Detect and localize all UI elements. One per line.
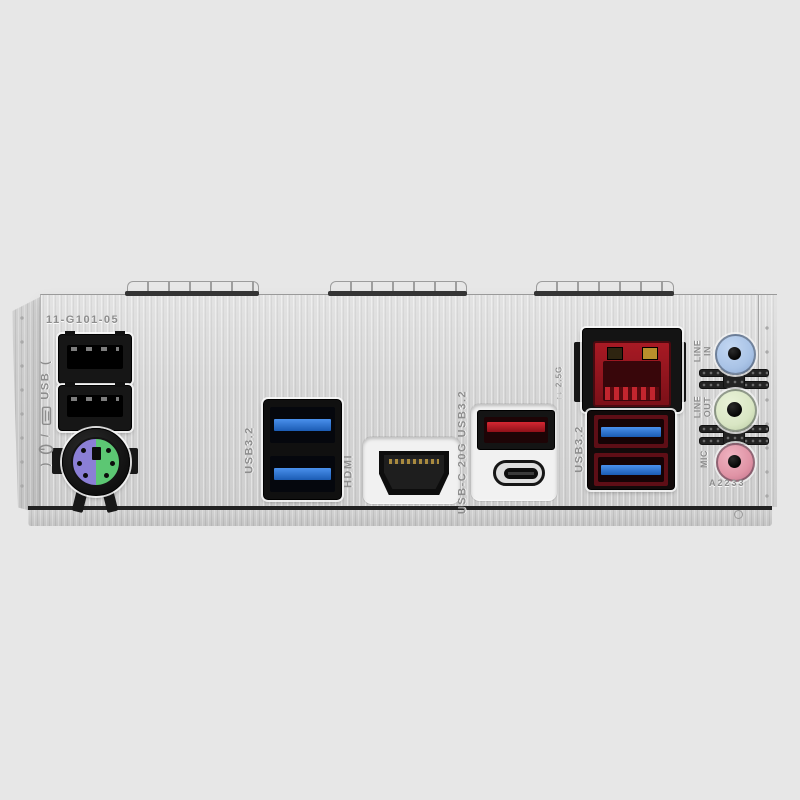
- usb2-port-2: [58, 385, 132, 431]
- usb32-gen1-stack: [263, 399, 342, 500]
- ps2-pin-hole: [83, 473, 88, 478]
- usb32-gen2-stack: [587, 410, 675, 490]
- usb-contacts: [71, 347, 119, 351]
- usb3-tongue: [274, 468, 331, 480]
- bottom-dimple: [734, 510, 743, 519]
- usb-text: USB: [40, 372, 53, 400]
- usb32-gen2-port-2: [594, 453, 668, 486]
- emi-dimples-left: [17, 306, 27, 506]
- usb-slot: [598, 457, 664, 482]
- usb2-slot: [67, 345, 123, 369]
- usb32-mid-label: USB3.2: [244, 426, 257, 474]
- usb-c-port: [493, 460, 545, 486]
- usb-shell-ear: [115, 382, 125, 387]
- ps2-pin-hole: [104, 473, 109, 478]
- keyboard-icon: [41, 407, 51, 426]
- usb32-gen1-port-1: [270, 407, 335, 443]
- usb32-gen2-red-port: [477, 410, 555, 450]
- ps2-pin-hole: [110, 461, 115, 466]
- paren: ): [40, 461, 53, 466]
- part-number-stamp: 11-G101-05: [46, 314, 119, 327]
- line-in-label: LINE IN: [693, 340, 714, 363]
- hdmi-label: HDMI: [343, 454, 356, 488]
- hdmi-recess: [363, 437, 460, 504]
- ps2-pin-hole: [106, 448, 111, 453]
- mic-label: MIC: [699, 450, 709, 468]
- line-out-label: LINE OUT: [693, 396, 714, 419]
- ps2-pin-hole: [77, 461, 82, 466]
- usb-c-tongue: [508, 472, 534, 475]
- usb-shell-ear: [65, 382, 75, 387]
- emi-dimples-right: [762, 316, 772, 501]
- ps2-pin-hole: [81, 448, 86, 453]
- usbc-label: USB-C 20G USB3.2: [457, 390, 470, 514]
- usb-slot: [598, 419, 664, 444]
- usb-shell-ear: [65, 331, 75, 336]
- usb32-gen2-port-1: [594, 415, 668, 448]
- mouse-icon: [39, 444, 54, 454]
- tab-shadow-right: [534, 291, 674, 296]
- slash: /: [40, 433, 53, 438]
- usb3-tongue: [601, 465, 661, 475]
- product-photo: 11-G101-05 ) / USB: [0, 0, 800, 800]
- ps2-key-slot: [92, 447, 101, 460]
- usbc-recess: [471, 404, 557, 501]
- usb3-tongue: [601, 427, 661, 437]
- ps2-face: [71, 437, 121, 487]
- ps2-port: [62, 428, 130, 496]
- audio-jack-line-out: [714, 389, 757, 432]
- jack-hole: [727, 402, 742, 417]
- usb-red-tongue: [487, 422, 545, 432]
- usb32-right-label: USB3.2: [574, 425, 587, 473]
- usb-contacts: [71, 397, 119, 401]
- lan-led-left: [607, 347, 623, 360]
- rj45-pins: [605, 387, 659, 400]
- jack-hole: [728, 455, 741, 468]
- usb3-tongue: [274, 419, 331, 431]
- hdmi-pins: [389, 459, 439, 464]
- lan-speed-stamp: ↑↓ 2.5G: [554, 366, 563, 401]
- usb2-slot: [67, 395, 123, 417]
- batch-code-stamp: A2233: [709, 478, 746, 488]
- jack-hole: [728, 347, 741, 360]
- usb2-port-1: [58, 334, 132, 384]
- usb-c-slot: [504, 468, 538, 479]
- tab-shadow-left: [125, 291, 259, 296]
- lan-red-body: [593, 341, 671, 407]
- audio-jack-mic: [716, 443, 755, 482]
- tab-shadow-center: [328, 291, 467, 296]
- usb-shell-ear: [115, 331, 125, 336]
- red-usb-slot: [484, 417, 548, 443]
- audio-jack-line-in: [715, 334, 756, 375]
- rj45-slot: [603, 361, 661, 401]
- kbms-usb-stamp: ) / USB (: [39, 360, 54, 467]
- hdmi-port: [379, 451, 449, 495]
- shield-bottom-flange: [28, 506, 772, 526]
- lan-port: [582, 328, 682, 412]
- paren: (: [40, 360, 53, 365]
- usb32-gen1-port-2: [270, 456, 335, 492]
- lan-led-right: [642, 347, 658, 360]
